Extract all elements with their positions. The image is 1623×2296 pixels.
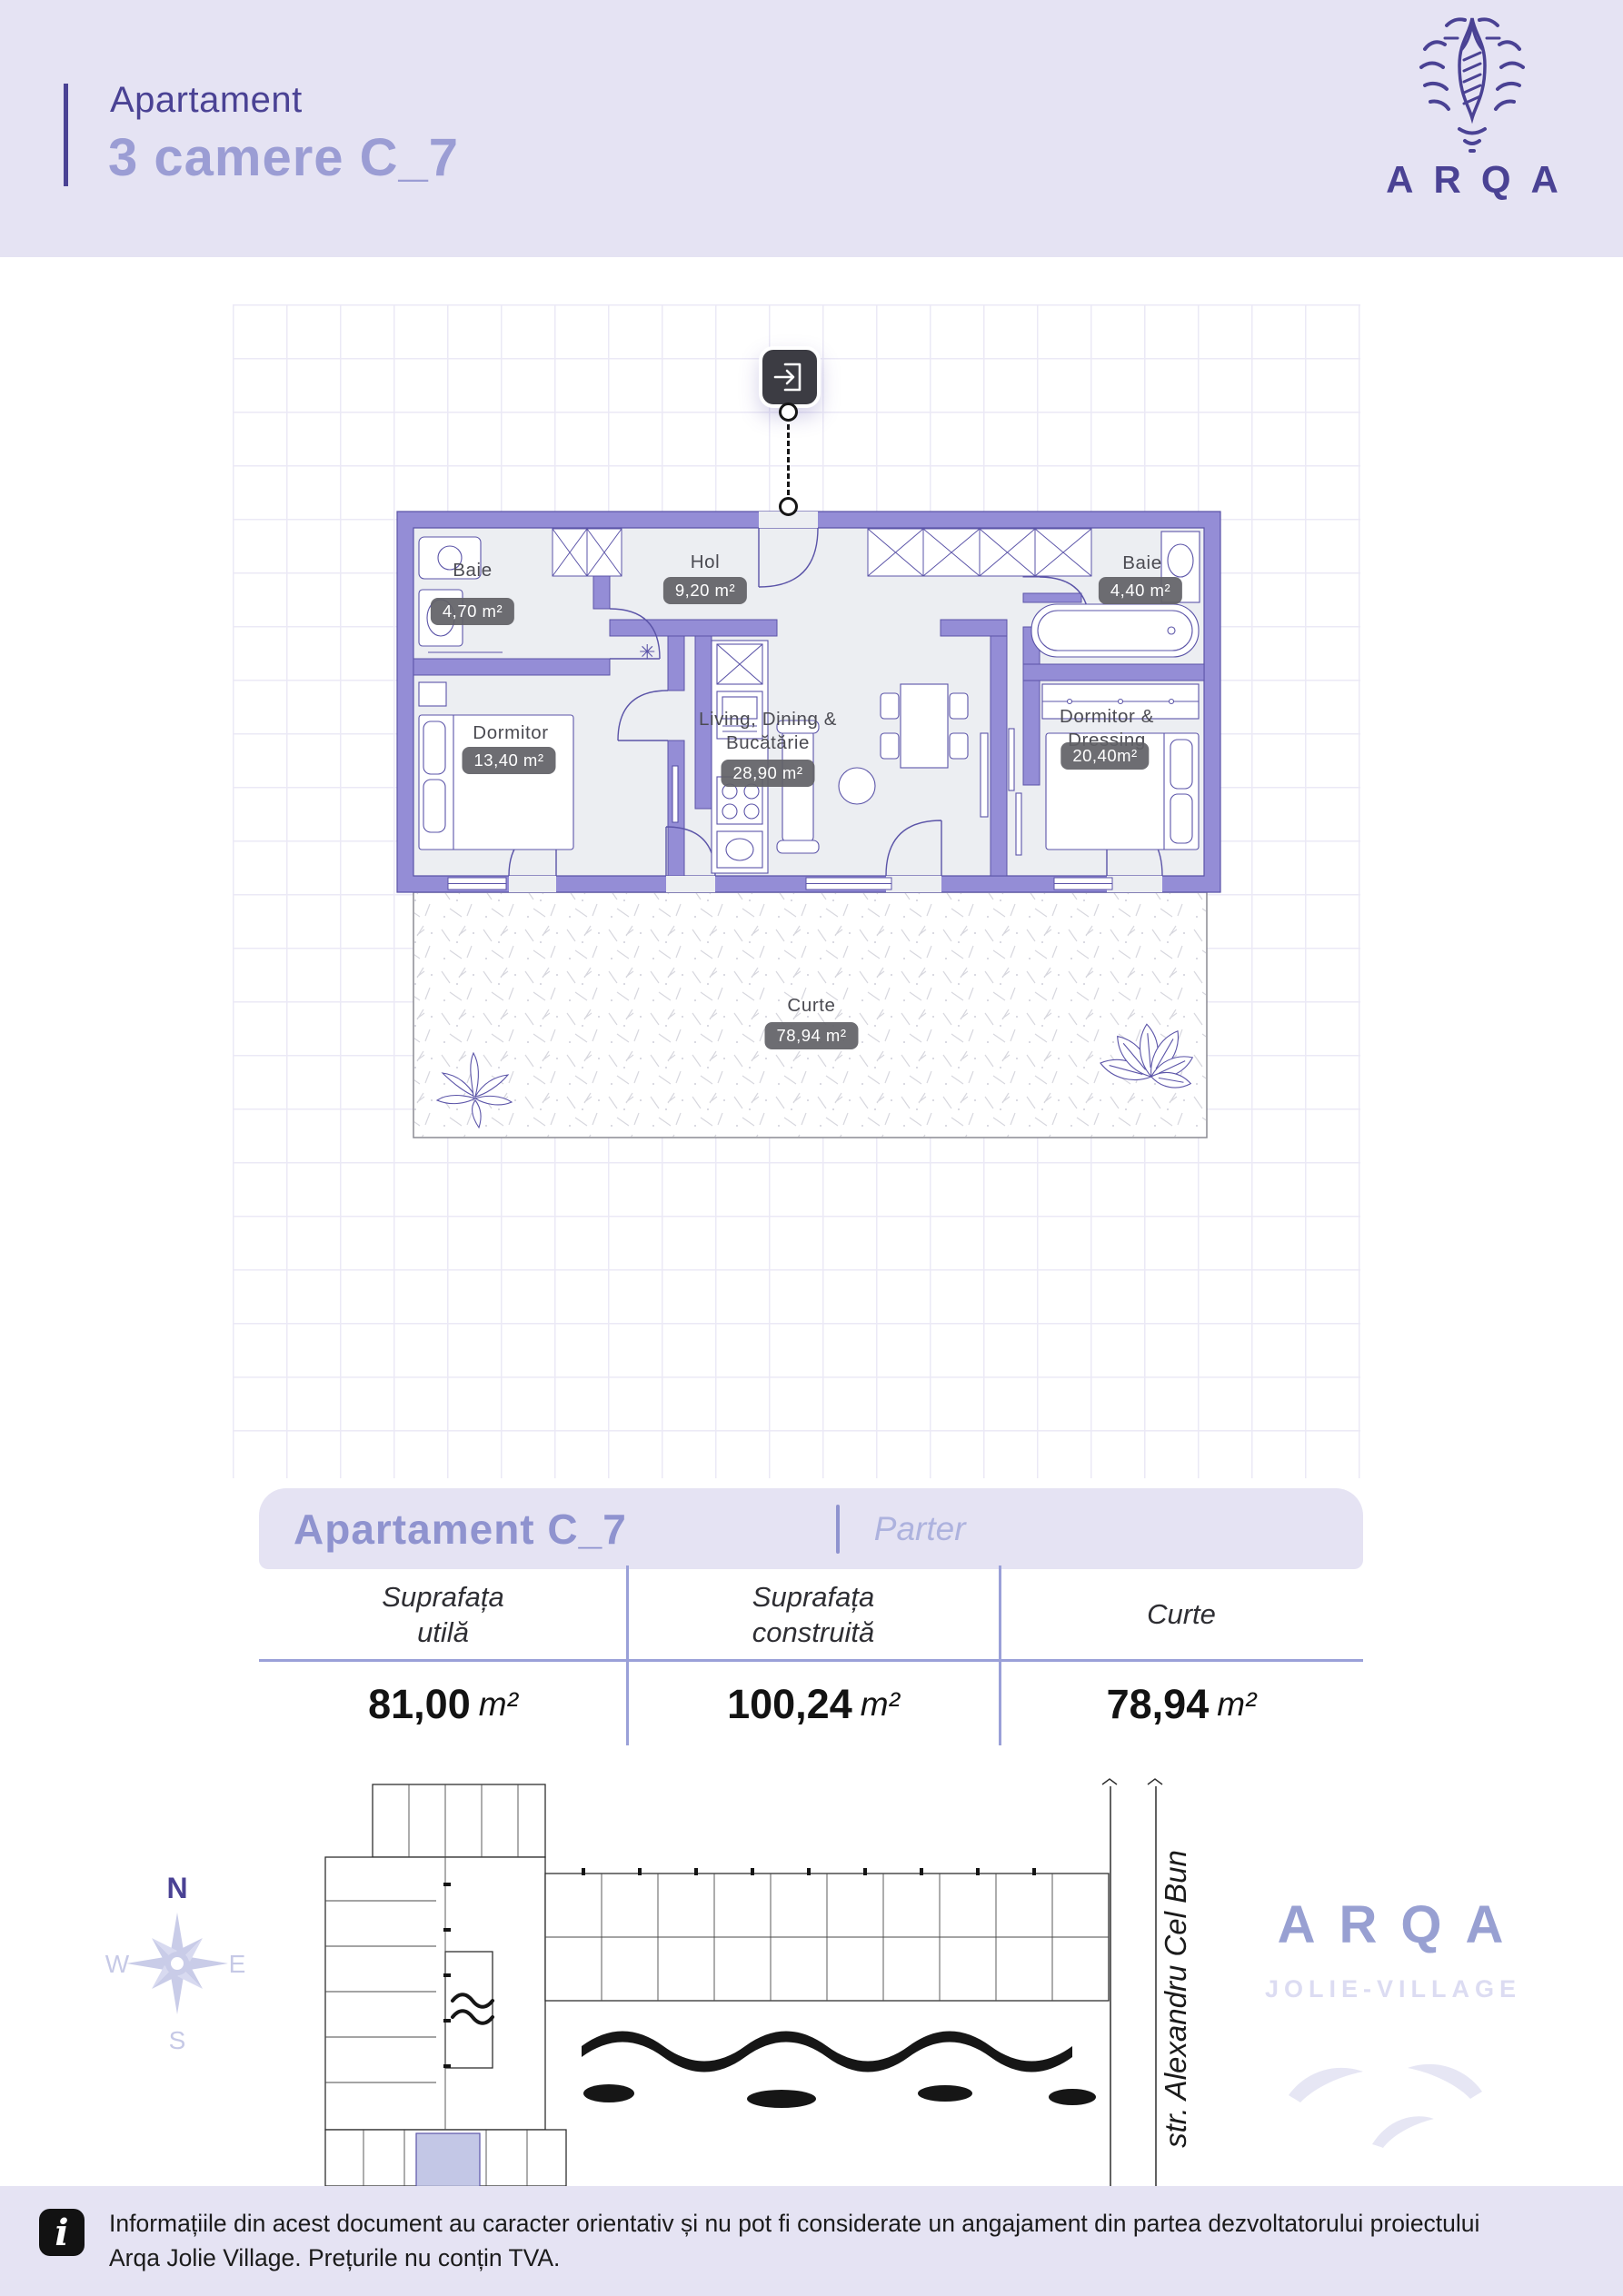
- summary-floor: Parter: [874, 1510, 966, 1548]
- area-badge-baie-1: 4,70 m²: [431, 598, 514, 625]
- tv-icon: [981, 733, 988, 817]
- coffee-table-icon: [839, 768, 875, 804]
- value-number: 100,24: [727, 1681, 852, 1728]
- waves-icon: [1283, 2055, 1488, 2155]
- value-unit: m²: [1217, 1685, 1256, 1724]
- compass-s: S: [169, 2026, 186, 2054]
- room-label-hol: Hol: [691, 551, 721, 574]
- street-label: str. Alexandru Cel Bun: [1159, 1850, 1193, 2148]
- area-badge-living: 28,90 m²: [721, 760, 814, 787]
- kitchen-icon: [712, 641, 768, 873]
- col-header-suprafata-utila: Suprafața utilă: [259, 1569, 627, 1659]
- col-header-curte: Curte: [1000, 1569, 1363, 1659]
- table-divider: [626, 1565, 629, 1745]
- enter-arrow-icon: [770, 357, 810, 397]
- page-title: 3 camere C_7: [108, 127, 459, 188]
- entry-dashed-line: [787, 424, 790, 495]
- value-curte: 78,94 m²: [1000, 1659, 1363, 1749]
- value-unit: m²: [479, 1685, 518, 1724]
- value-unit: m²: [861, 1685, 900, 1724]
- entry-dot-bottom: [779, 497, 798, 516]
- room-label-dormitor: Dormitor: [473, 721, 548, 745]
- room-label-baie-1: Baie: [453, 559, 492, 582]
- summary-title: Apartament C_7: [294, 1505, 627, 1554]
- table-divider: [999, 1565, 1001, 1745]
- summary-header: Apartament C_7 Parter: [259, 1488, 1363, 1569]
- entry-door-icon: [759, 346, 821, 408]
- compass-icon: N W E S: [103, 1865, 252, 2058]
- highlighted-unit: [416, 2133, 480, 2188]
- compass-n: N: [166, 1872, 187, 1904]
- room-label-living: Living, Dining & Bucătărie: [699, 708, 837, 755]
- room-label-baie-2: Baie: [1122, 552, 1161, 575]
- header-band: Apartament 3 camere C_7 ARQA: [0, 0, 1623, 257]
- brand-wordmark: ARQA: [1336, 158, 1608, 202]
- area-badge-dormitor-dressing: 20,40m²: [1060, 742, 1149, 770]
- value-number: 78,94: [1107, 1681, 1210, 1728]
- compass-w: W: [105, 1950, 130, 1978]
- boiler-icon: ✳: [639, 641, 655, 663]
- area-badge-curte: 78,94 m²: [764, 1022, 858, 1049]
- info-icon: i: [39, 2209, 85, 2256]
- floor-plan: ✳: [395, 504, 1222, 1140]
- site-plan: [309, 1774, 1127, 2193]
- page: Apartament 3 camere C_7 ARQA: [0, 0, 1623, 2296]
- disclaimer-text: Informațiile din acest document au carac…: [109, 2206, 1608, 2275]
- value-number: 81,00: [368, 1681, 471, 1728]
- accent-bar: [64, 84, 68, 186]
- brand-subtitle: JOLIE-VILLAGE: [1240, 1975, 1540, 2003]
- table-divider: [259, 1659, 1363, 1662]
- summary-divider: [836, 1505, 840, 1554]
- landscape-wave: [582, 2032, 1072, 2072]
- brand-footer-logo: ARQA JOLIE-VILLAGE: [1240, 1894, 1540, 2003]
- brand-wordmark: ARQA: [1240, 1894, 1540, 1955]
- area-badge-hol: 9,20 m²: [663, 577, 747, 604]
- value-suprafata-utila: 81,00 m²: [259, 1659, 627, 1749]
- arqa-emblem-icon: [1416, 11, 1528, 154]
- bathtub-icon: [1031, 604, 1199, 657]
- entry-dot-top: [779, 403, 798, 422]
- value-suprafata-construita: 100,24 m²: [627, 1659, 1000, 1749]
- compass-e: E: [229, 1950, 246, 1978]
- col-header-suprafata-construita: Suprafața construită: [627, 1569, 1000, 1659]
- summary-table: Suprafața utilă Suprafața construită Cur…: [259, 1569, 1363, 1749]
- area-badge-dormitor: 13,40 m²: [462, 747, 555, 774]
- area-badge-baie-2: 4,40 m²: [1099, 577, 1182, 604]
- brand-logo: ARQA: [1336, 11, 1608, 202]
- header-kicker: Apartament: [110, 80, 303, 121]
- room-label-curte: Curte: [787, 994, 835, 1018]
